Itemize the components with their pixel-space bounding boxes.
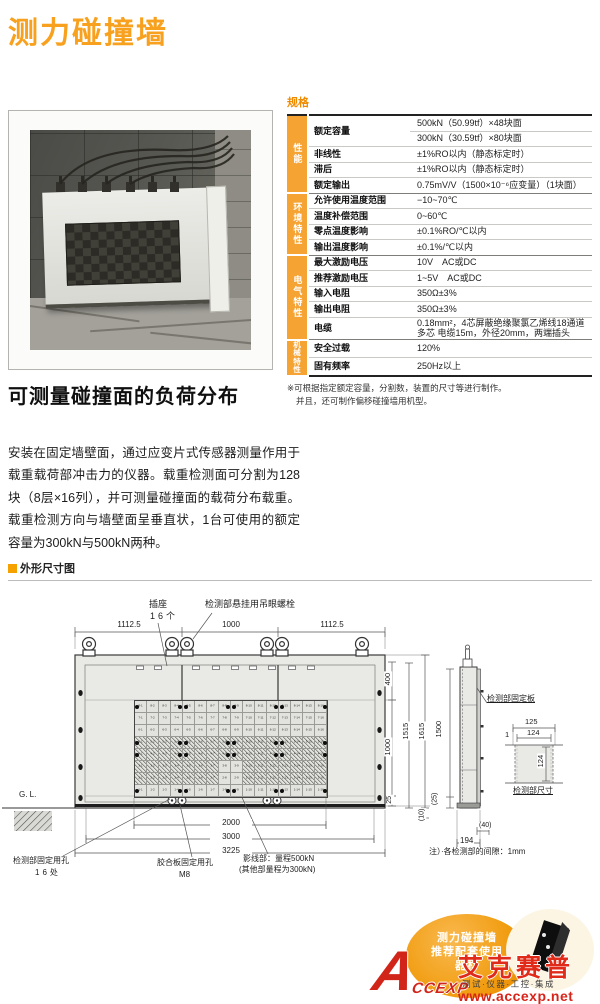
spec-label: 固有频率 <box>308 358 410 377</box>
grid-cell: 1-2 <box>147 785 159 797</box>
grid-cell: 2-10 <box>243 773 255 785</box>
intro-heading: 可测量碰撞面的负荷分布 <box>8 380 300 409</box>
grid-cell: 2-5 <box>183 773 195 785</box>
eyebolt-label: 检测部悬挂用吊眼螺栓 <box>204 600 296 610</box>
grid-cell: 3-13 <box>279 761 291 773</box>
grid-cell: 3-8 <box>219 761 231 773</box>
bolt-dot <box>226 705 230 709</box>
detection-grid: 8-18-28-38-48-58-68-78-88-98-108-118-128… <box>134 700 328 798</box>
spec-value: −10~70℃ <box>410 193 592 209</box>
grid-cell: 5-3 <box>159 737 171 749</box>
socket-count: 16个 <box>149 612 179 622</box>
grid-cell: 4-3 <box>159 749 171 761</box>
cables <box>30 130 251 200</box>
grid-cell: 4-2 <box>147 749 159 761</box>
spec-category: 机械特性 <box>287 340 308 377</box>
spec-table: 性能额定容量500kN（50.99tf）×48块面300kN（30.59tf）×… <box>287 114 592 377</box>
bolt-dot <box>135 705 139 709</box>
panel-end-cap <box>206 186 230 313</box>
dim-10: (10) <box>418 808 426 822</box>
grid-cell: 7-16 <box>315 713 327 725</box>
grid-cell: 2-12 <box>267 773 279 785</box>
dim-1515: 1515 <box>402 722 410 741</box>
dim-124: 124 <box>526 729 541 737</box>
spec-label: 滞后 <box>308 162 410 178</box>
drawing-divider <box>8 580 592 581</box>
grid-cell: 1-11 <box>255 785 267 797</box>
grid-cell: 2-13 <box>279 773 291 785</box>
grid-cell: 6-4 <box>171 725 183 737</box>
spec-label: 零点温度影响 <box>308 224 410 240</box>
grid-cell: 8-2 <box>147 701 159 713</box>
bolt-dot <box>135 753 139 757</box>
grid-cell: 3-15 <box>303 761 315 773</box>
spec-footnote-line2: 并且，还可制作偏移碰撞墙用机型。 <box>287 395 592 408</box>
product-photo-frame <box>8 110 273 370</box>
grid-cell: 3-12 <box>267 761 279 773</box>
grid-cell: 7-5 <box>183 713 195 725</box>
dim-25: 25 <box>386 795 394 805</box>
grid-cell: 3-14 <box>291 761 303 773</box>
grid-cell: 2-9 <box>231 773 243 785</box>
grid-cell: 3-3 <box>159 761 171 773</box>
spec-label: 温度补偿范围 <box>308 209 410 225</box>
grid-cell: 6-13 <box>279 725 291 737</box>
spec-category: 环境特性 <box>287 193 308 255</box>
grid-cell: 2-7 <box>207 773 219 785</box>
spec-value: 1~5V AC或DC <box>410 271 592 287</box>
bolt-dot <box>274 753 278 757</box>
bolt-dot <box>135 789 139 793</box>
grid-cell: 7-9 <box>231 713 243 725</box>
grid-cell: 2-1 <box>135 773 147 785</box>
grid-cell: 8-3 <box>159 701 171 713</box>
bolt-dot <box>178 705 182 709</box>
grid-cell: 3-16 <box>315 761 327 773</box>
grid-cell: 8-14 <box>291 701 303 713</box>
grid-cell: 6-15 <box>303 725 315 737</box>
dim-40: (40) <box>478 822 492 830</box>
grid-cell: 2-11 <box>255 773 267 785</box>
spec-label: 额定输出 <box>308 178 410 194</box>
dim-125: 125 <box>524 718 539 726</box>
grid-cell: 7-3 <box>159 713 171 725</box>
grid-cell: 3-5 <box>183 761 195 773</box>
plate-label: 检测部固定板 <box>486 695 536 704</box>
grid-cell: 4-15 <box>303 749 315 761</box>
grid-cell: 2-14 <box>291 773 303 785</box>
grid-cell: 8-7 <box>207 701 219 713</box>
gap-note: 注）·各检测部的间隙：1mm <box>428 848 526 857</box>
spec-label: 推荐激励电压 <box>308 271 410 287</box>
spec-value: ±0.1%RO/℃以内 <box>410 224 592 240</box>
footer: 测力碰撞墙 推荐配套使用 器材 A CCEXP 艾克赛普 测试·仪器·工控·集成… <box>378 908 600 1002</box>
grid-cell: 2-6 <box>195 773 207 785</box>
grid-cell: 6-11 <box>255 725 267 737</box>
hatch-note-1: 影线部：量程500kN <box>242 855 315 864</box>
bolt-dot <box>135 741 139 745</box>
dim-194: 194 <box>459 837 474 846</box>
grid-cell: 4-11 <box>255 749 267 761</box>
grid-cell: 7-15 <box>303 713 315 725</box>
device-indicator-dot <box>542 933 546 937</box>
product-photo <box>30 130 251 350</box>
dim-2000: 2000 <box>210 819 252 828</box>
spec-footnote: ※可根据指定额定容量，分割数，装置的尺寸等进行制作。 并且，还可制作偏移碰撞墙用… <box>287 382 592 408</box>
bolt-dot <box>178 753 182 757</box>
grid-cell: 7-14 <box>291 713 303 725</box>
spec-value: 0~60℃ <box>410 209 592 225</box>
bolt-dot <box>178 789 182 793</box>
spec-value: 300kN（30.59tf）×80块面 <box>410 131 592 147</box>
spec-table-body: 性能额定容量500kN（50.99tf）×48块面300kN（30.59tf）×… <box>287 115 592 376</box>
grid-cell: 6-3 <box>159 725 171 737</box>
grid-cell: 1-6 <box>195 785 207 797</box>
grid-cell: 6-9 <box>231 725 243 737</box>
grid-cell: 7-4 <box>171 713 183 725</box>
spec-label: 输出温度影响 <box>308 240 410 256</box>
spec-label: 输出电阻 <box>308 302 410 318</box>
bolt-dot <box>274 741 278 745</box>
side-view <box>446 645 489 847</box>
grid-cell: 5-14 <box>291 737 303 749</box>
grid-cell: 5-7 <box>207 737 219 749</box>
spec-label: 额定容量 <box>308 115 410 147</box>
bolt-dot <box>274 789 278 793</box>
grid-cell: 2-8 <box>219 773 231 785</box>
spec-value: 500kN（50.99tf）×48块面 <box>410 115 592 131</box>
intro-section: 可测量碰撞面的负荷分布 安装在固定墙壁面，通过应变片式传感器测量作用于载重载荷部… <box>8 380 300 554</box>
grid-cell: 6-7 <box>207 725 219 737</box>
dim-top-3: 1112.5 <box>311 621 353 630</box>
dim-124v: 124 <box>537 754 545 769</box>
grid-cell: 7-2 <box>147 713 159 725</box>
bolt-dot <box>226 789 230 793</box>
spec-footnote-line1: ※可根据指定额定容量，分割数，装置的尺寸等进行制作。 <box>287 382 592 395</box>
dim-400: 400 <box>384 672 392 687</box>
spec-label: 安全过载 <box>308 340 410 358</box>
grid-cell: 6-8 <box>219 725 231 737</box>
spec-label: 电缆 <box>308 317 410 340</box>
dim-1: 1 <box>504 731 510 739</box>
hole-label-1: 检测部固定用孔 <box>12 857 70 866</box>
grid-cell: 2-3 <box>159 773 171 785</box>
grid-cell: 1-7 <box>207 785 219 797</box>
spec-value: ±0.1%/℃以内 <box>410 240 592 256</box>
detail-title: 检测部尺寸 <box>512 787 554 796</box>
spec-value: 350Ω±3% <box>410 302 592 318</box>
dim-3000: 3000 <box>210 833 252 842</box>
spec-value: ±1%RO以内（静态标定时） <box>410 162 592 178</box>
dim-s25: (25) <box>431 792 439 806</box>
grid-cell: 4-10 <box>243 749 255 761</box>
grid-cell: 6-6 <box>195 725 207 737</box>
grid-cell: 4-14 <box>291 749 303 761</box>
grid-cell: 5-10 <box>243 737 255 749</box>
grid-cell: 2-2 <box>147 773 159 785</box>
hole-count-1: 16处 <box>34 869 62 878</box>
intro-body: 安装在固定墙壁面，通过应变片式传感器测量作用于载重载荷部冲击力的仪器。载重检测面… <box>8 442 300 554</box>
grid-cell: 7-10 <box>243 713 255 725</box>
bolt-dot <box>178 741 182 745</box>
spec-label: 最大激励电压 <box>308 255 410 271</box>
grid-cell: 6-14 <box>291 725 303 737</box>
grid-cell: 7-6 <box>195 713 207 725</box>
grid-cell: 5-6 <box>195 737 207 749</box>
grid-cell: 7-11 <box>255 713 267 725</box>
dim-top-1: 1112.5 <box>108 621 150 630</box>
grid-cell: 4-6 <box>195 749 207 761</box>
spec-value: 350Ω±3% <box>410 286 592 302</box>
gl-label: G. L. <box>18 791 37 800</box>
spec-label: 允许使用温度范围 <box>308 193 410 209</box>
grid-cell: 3-2 <box>147 761 159 773</box>
grid-cell: 1-10 <box>243 785 255 797</box>
grid-cell: 1-15 <box>303 785 315 797</box>
detection-surface <box>65 220 181 286</box>
dim-1615: 1615 <box>418 722 426 741</box>
bolt-dot <box>274 705 278 709</box>
grid-cell: 6-2 <box>147 725 159 737</box>
grid-cell: 3-9 <box>231 761 243 773</box>
grid-cell: 5-2 <box>147 737 159 749</box>
grid-cell: 3-4 <box>171 761 183 773</box>
grid-cell: 5-11 <box>255 737 267 749</box>
spec-value: 0.18mm²，4芯屏蔽绝缘聚氯乙烯线18通道多芯 电缆15m，外径20mm，两… <box>410 317 592 340</box>
grid-cell: 7-8 <box>219 713 231 725</box>
dim-top-2: 1000 <box>215 621 247 630</box>
dim-1000r: 1000 <box>384 738 392 757</box>
spec-value: 120% <box>410 340 592 358</box>
grid-cell: 3-1 <box>135 761 147 773</box>
grid-cell: 2-16 <box>315 773 327 785</box>
grid-cell: 3-7 <box>207 761 219 773</box>
spec-section: 规格 性能额定容量500kN（50.99tf）×48块面300kN（30.59t… <box>287 94 592 408</box>
grid-cell: 8-11 <box>255 701 267 713</box>
grid-cell: 6-1 <box>135 725 147 737</box>
grid-cell: 6-16 <box>315 725 327 737</box>
hole-size-2: M8 <box>178 871 191 880</box>
orange-square-icon <box>8 564 17 573</box>
dim-1500: 1500 <box>435 720 443 739</box>
bolt-dot <box>226 741 230 745</box>
spec-heading: 规格 <box>287 94 592 110</box>
grid-cell: 7-7 <box>207 713 219 725</box>
spec-label: 非线性 <box>308 147 410 163</box>
grid-cell: 8-6 <box>195 701 207 713</box>
grid-cell: 6-12 <box>267 725 279 737</box>
grid-cell: 7-13 <box>279 713 291 725</box>
grid-cell: 8-10 <box>243 701 255 713</box>
grid-cell: 2-15 <box>303 773 315 785</box>
spec-category: 电气特性 <box>287 255 308 340</box>
grid-cell: 3-6 <box>195 761 207 773</box>
spec-category: 性能 <box>287 115 308 193</box>
spec-value: ±1%RO以内（静态标定时） <box>410 147 592 163</box>
spec-value: 10V AC或DC <box>410 255 592 271</box>
dimension-drawing: 8-18-28-38-48-58-68-78-88-98-108-118-128… <box>0 585 600 915</box>
hatch-note-2: (其他部量程为300kN) <box>238 866 316 875</box>
hole-label-2: 胶合板固定用孔 <box>156 859 214 868</box>
grid-cell: 6-10 <box>243 725 255 737</box>
grid-cell: 1-14 <box>291 785 303 797</box>
spec-value: 0.75mV/V（1500×10⁻⁶应变量）（1块面） <box>410 178 592 194</box>
grid-cell: 3-10 <box>243 761 255 773</box>
grid-cell: 5-15 <box>303 737 315 749</box>
drawing-heading-text: 外形尺寸图 <box>20 563 75 575</box>
grid-cell: 3-11 <box>255 761 267 773</box>
grid-cell: 6-5 <box>183 725 195 737</box>
grid-cell: 8-15 <box>303 701 315 713</box>
drawing-heading: 外形尺寸图 <box>8 560 592 576</box>
bolt-dot <box>226 753 230 757</box>
spec-label: 输入电阻 <box>308 286 410 302</box>
socket-label: 插座 <box>148 600 168 610</box>
grid-cell: 7-1 <box>135 713 147 725</box>
grid-cell: 2-4 <box>171 773 183 785</box>
grid-cell: 7-12 <box>267 713 279 725</box>
grid-cell: 1-3 <box>159 785 171 797</box>
spec-value: 250Hz以上 <box>410 358 592 377</box>
grid-cell: 4-7 <box>207 749 219 761</box>
page-title: 测力碰撞墙 <box>8 8 168 52</box>
